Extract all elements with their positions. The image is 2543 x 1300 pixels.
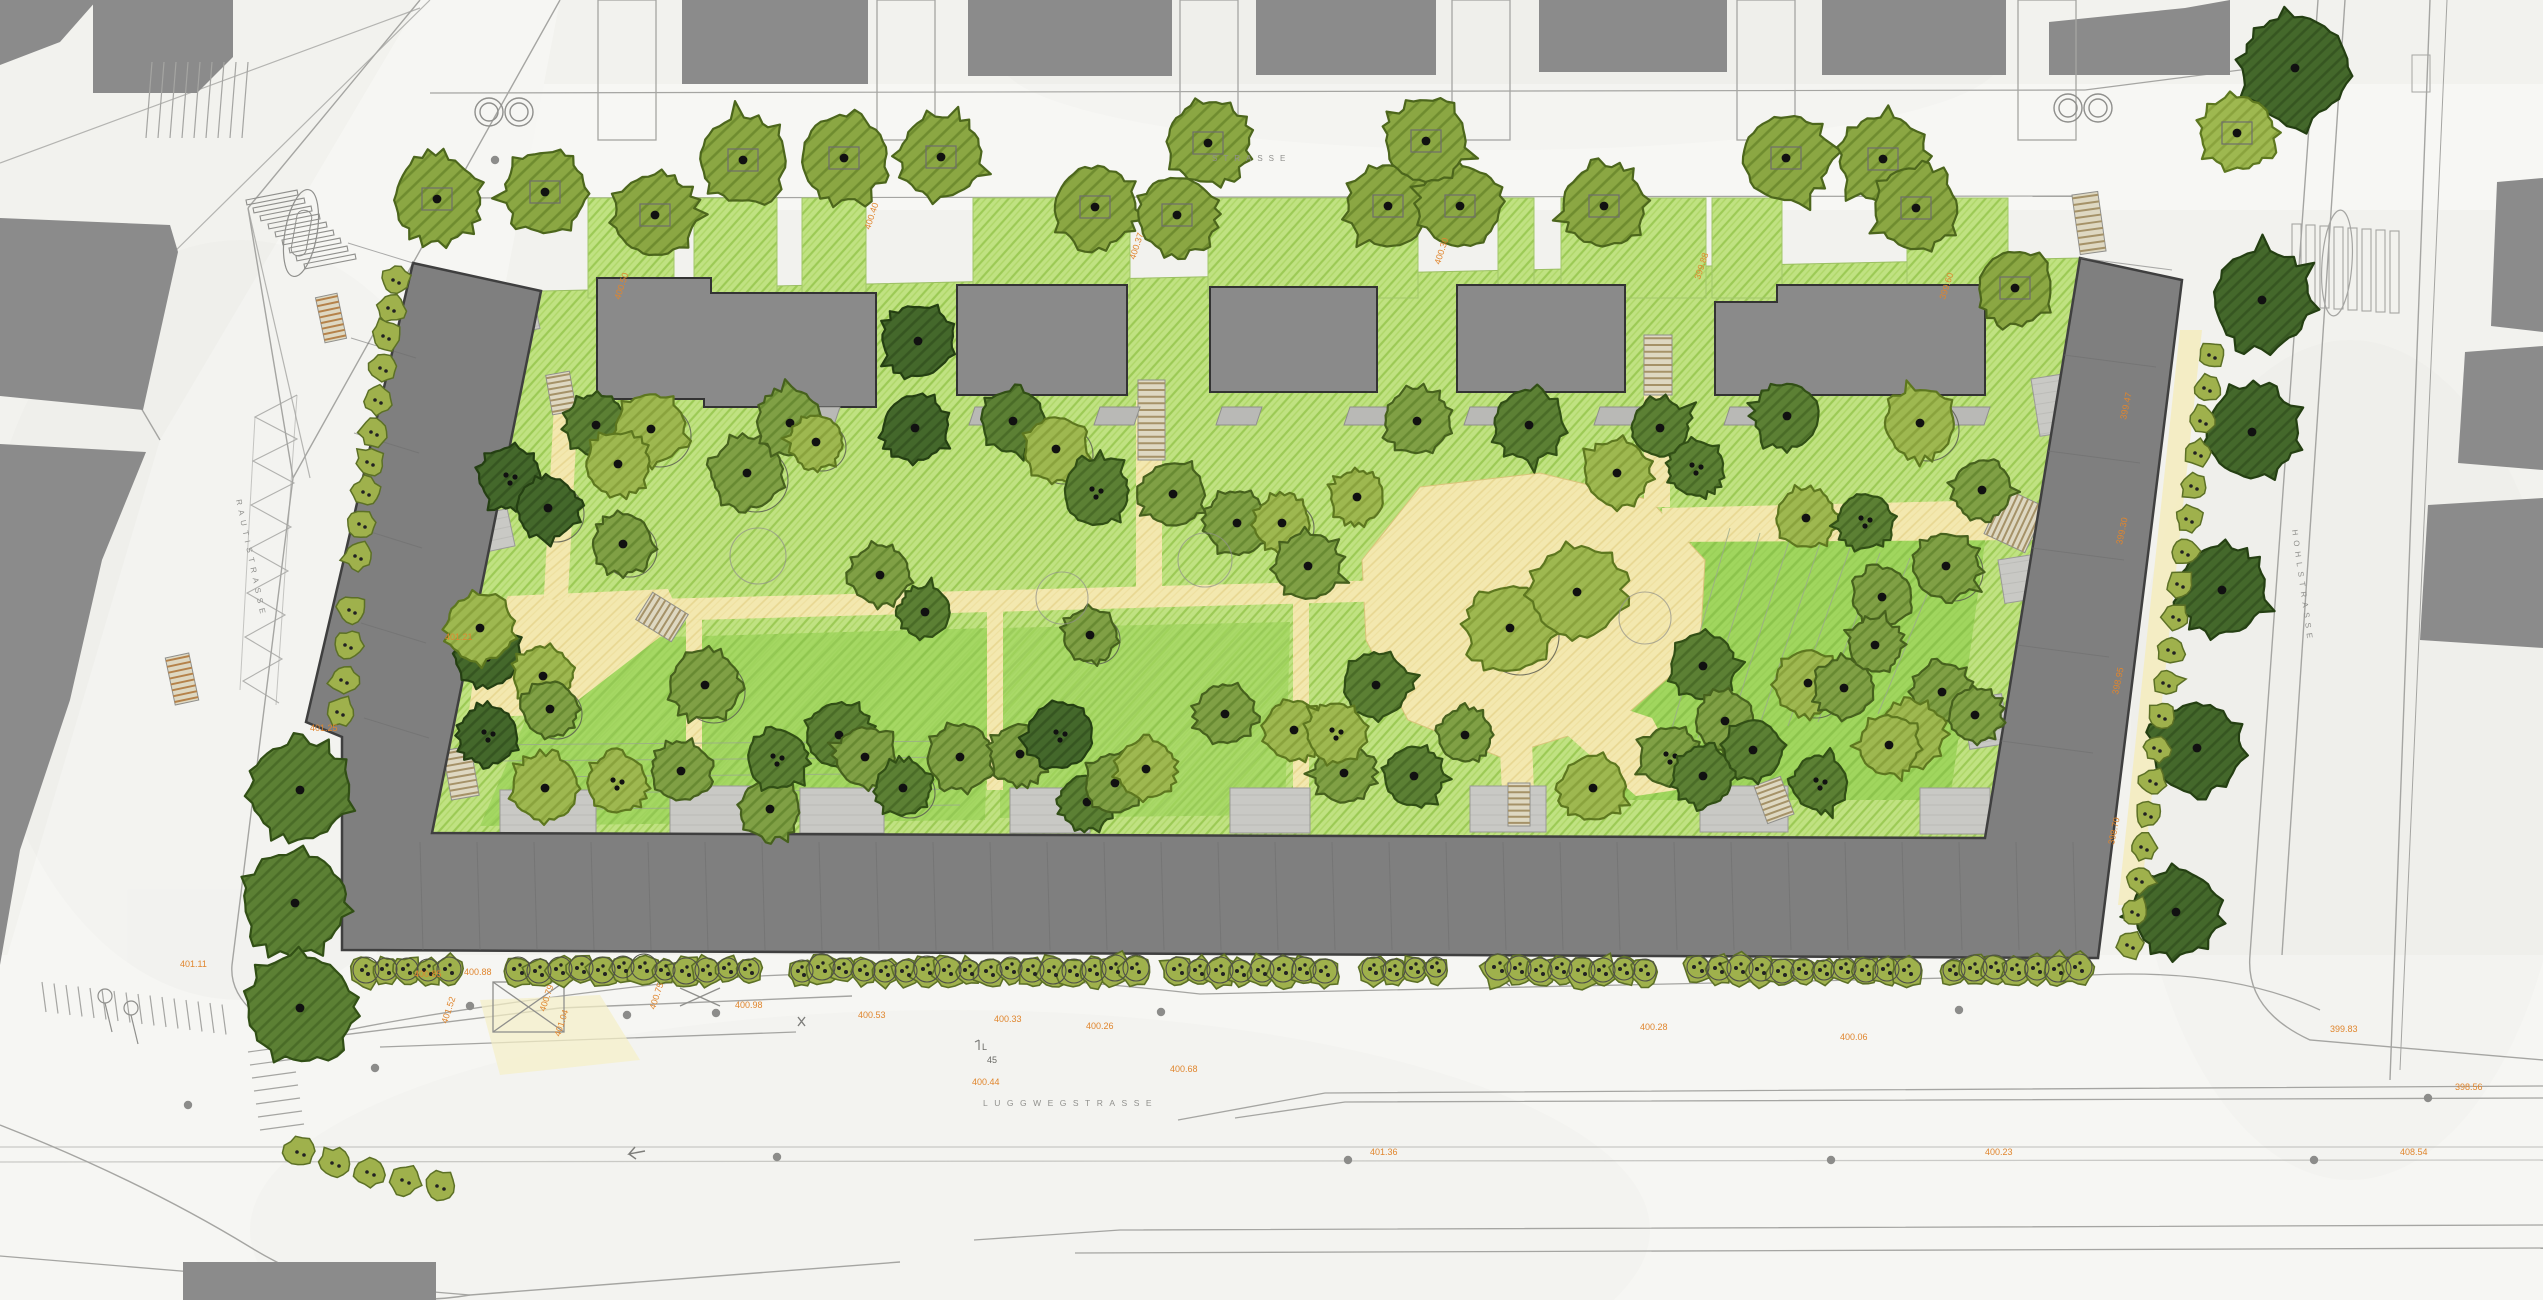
svg-text:401.11: 401.11 [180, 959, 207, 969]
svg-text:400.98: 400.98 [735, 1000, 763, 1010]
svg-text:LUGGWEGSTRASSE: LUGGWEGSTRASSE [983, 1098, 1158, 1108]
svg-text:400.26: 400.26 [1086, 1021, 1114, 1031]
svg-text:398.56: 398.56 [2455, 1082, 2483, 1092]
svg-text:408.54: 408.54 [2400, 1147, 2428, 1157]
svg-text:401.21: 401.21 [445, 632, 473, 642]
svg-text:45: 45 [987, 1055, 997, 1065]
svg-text:400.44: 400.44 [972, 1077, 1000, 1087]
svg-text:400.88: 400.88 [464, 967, 492, 977]
svg-text:L: L [982, 1042, 987, 1052]
svg-text:400.85: 400.85 [414, 969, 442, 979]
svg-text:400.23: 400.23 [1985, 1147, 2013, 1157]
svg-text:401.25: 401.25 [310, 723, 338, 733]
svg-text:400.68: 400.68 [1170, 1064, 1198, 1074]
svg-text:400.28: 400.28 [1640, 1022, 1668, 1032]
svg-text:401.36: 401.36 [1370, 1147, 1398, 1157]
svg-text:400.33: 400.33 [994, 1014, 1022, 1024]
svg-text:399.83: 399.83 [2330, 1024, 2358, 1034]
svg-text:400.53: 400.53 [858, 1010, 886, 1020]
svg-text:400.06: 400.06 [1840, 1032, 1868, 1042]
svg-text:STRASSE: STRASSE [1212, 154, 1291, 163]
